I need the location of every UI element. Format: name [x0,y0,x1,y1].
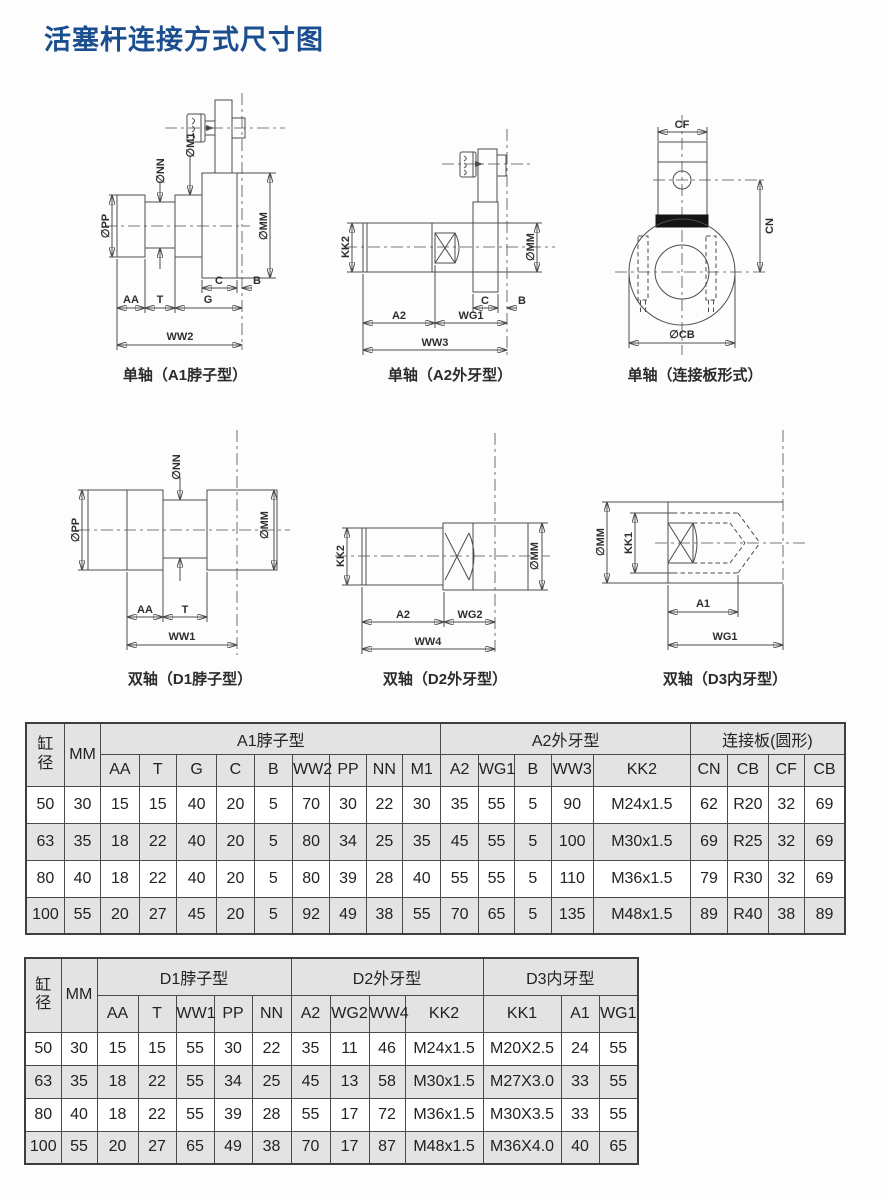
table-cell: 34 [214,1065,252,1098]
table-cell: 40 [403,860,441,897]
table-cell: 55 [176,1098,214,1131]
dim-label-t: T [182,604,189,616]
table-row: 63351822553425451358M30x1.5M27X3.03355 [25,1065,638,1098]
table-cell: 55 [478,786,514,823]
table-cell: 40 [176,786,216,823]
table-cell: 110 [551,860,593,897]
table-cell: 27 [138,1131,176,1164]
dim-label-g: G [204,294,213,306]
dim-label-c: C [481,295,489,307]
column-header: WG1 [599,995,638,1032]
table-cell: M30X3.5 [483,1098,561,1131]
dim-label-a2: A2 [392,310,406,322]
table-cell: 55 [478,860,514,897]
caption-d2: 双轴（D2外牙型） [320,668,570,689]
dim-label-wg1: WG1 [458,310,483,322]
table-cell: 5 [515,823,551,860]
column-header: NN [252,995,291,1032]
column-header: C [217,754,254,786]
table-cell: M30x1.5 [405,1065,483,1098]
table-row: 5030151540205703022303555590M24x1.562R20… [26,786,845,823]
column-header: WW3 [551,754,593,786]
table-cell: 40 [561,1131,599,1164]
table-cell: 24 [561,1032,599,1065]
double-shaft-dimension-table: 缸径MMD1脖子型D2外牙型D3内牙型AATWW1PPNNA2WG2WW4KK2… [24,957,639,1165]
column-header: WG1 [478,754,514,786]
dim-label-ww3: WW3 [422,337,449,349]
table-cell: 70 [291,1131,330,1164]
column-header: CB [804,754,845,786]
table-cell: 55 [478,823,514,860]
column-header: CB [728,754,768,786]
table-cell: 87 [369,1131,405,1164]
dim-label-cf: CF [675,119,690,131]
table-cell: 65 [599,1131,638,1164]
table-cell: 18 [101,860,139,897]
dim-label-ww2: WW2 [167,331,194,343]
table-cell: 92 [292,897,329,934]
table-cell: 5 [254,823,292,860]
column-header: AA [97,995,138,1032]
table-cell: 39 [214,1098,252,1131]
table-cell: R30 [728,860,768,897]
table-cell: 32 [768,786,804,823]
table-cell: 80 [26,860,64,897]
table-cell: 89 [804,897,845,934]
table-cell: 63 [25,1065,61,1098]
table-cell: M36x1.5 [405,1098,483,1131]
table-cell: 69 [804,823,845,860]
dim-label-b: B [253,275,261,287]
table-cell: 20 [217,823,254,860]
table-cell: 25 [252,1065,291,1098]
table-cell: 65 [478,897,514,934]
table-cell: 49 [330,897,366,934]
table-cell: 38 [768,897,804,934]
column-header: WW1 [176,995,214,1032]
table-cell: 20 [217,786,254,823]
table-cell: 30 [330,786,366,823]
column-header: NN [366,754,402,786]
table-cell: 45 [291,1065,330,1098]
table-cell: 33 [561,1065,599,1098]
single-shaft-dimension-table: 缸径MMA1脖子型A2外牙型连接板(圆形)AATGCBWW2PPNNM1A2WG… [25,722,846,935]
group-header: A2外牙型 [441,723,690,754]
column-header: A2 [441,754,478,786]
corner-header-cell: 缸径 [25,958,61,1032]
table-cell: 22 [138,1098,176,1131]
caption-a1: 单轴（A1脖子型） [60,364,310,385]
table-cell: 55 [599,1098,638,1131]
diagram-d2-external-thread: KK2 ∅MM A2 WG2 WW4 [315,425,585,665]
diagram-a1-neck-type: ∅PP ∅NN ∅M1 ∅MM C B AA T G WW2 [50,85,330,355]
diagram-connecting-plate: CF CN ∅CB [595,105,875,365]
column-header: B [254,754,292,786]
table-cell: 17 [330,1098,369,1131]
dim-label-ww1: WW1 [169,631,196,643]
bore-header-label: 缸径 [37,736,55,773]
table-cell: 50 [25,1032,61,1065]
table-cell: 22 [139,860,176,897]
dim-label-aa: AA [123,294,139,306]
table-cell: 22 [252,1032,291,1065]
bore-header-label: 缸径 [34,977,52,1014]
table-cell: 100 [551,823,593,860]
table-row: 80401822402058039284055555110M36x1.579R3… [26,860,845,897]
table-cell: 65 [176,1131,214,1164]
group-header: D2外牙型 [291,958,483,995]
table-cell: 18 [97,1098,138,1131]
table-cell: 89 [690,897,727,934]
group-header: 连接板(圆形) [690,723,845,754]
table-row: 100552027452059249385570655135M48x1.589R… [26,897,845,934]
table-cell: R25 [728,823,768,860]
table-cell: 55 [176,1065,214,1098]
group-header: D1脖子型 [97,958,291,995]
table-cell: 18 [101,823,139,860]
table-cell: 40 [61,1098,97,1131]
diagram-d1-neck-type: ∅NN ∅PP ∅MM AA T WW1 [50,425,330,665]
table-cell: 5 [254,897,292,934]
dim-label-kk2: KK2 [340,236,352,258]
table-cell: 40 [64,860,100,897]
column-header: KK2 [593,754,690,786]
column-header: KK2 [405,995,483,1032]
table-cell: 55 [599,1032,638,1065]
column-header: T [139,754,176,786]
table-cell: 25 [366,823,402,860]
dim-label-pp: ∅PP [100,214,112,238]
table-cell: 28 [366,860,402,897]
table-cell: 49 [214,1131,252,1164]
table-cell: 15 [138,1032,176,1065]
column-header: B [515,754,551,786]
table-cell: 63 [26,823,64,860]
diagram-a2-external-thread: KK2 ∅MM C B A2 WG1 WW3 [320,115,590,365]
table-cell: 80 [292,860,329,897]
table-cell: 20 [97,1131,138,1164]
table-cell: M36x1.5 [593,860,690,897]
table-cell: 30 [214,1032,252,1065]
column-header: T [138,995,176,1032]
column-header: CN [690,754,727,786]
table-cell: 22 [138,1065,176,1098]
table-cell: 35 [64,823,100,860]
table-cell: 33 [561,1098,599,1131]
table-cell: 40 [176,823,216,860]
table-cell: 79 [690,860,727,897]
column-header: KK1 [483,995,561,1032]
table-cell: 5 [515,897,551,934]
column-header: PP [330,754,366,786]
table-cell: 100 [25,1131,61,1164]
table-row: 100552027654938701787M48x1.5M36X4.04065 [25,1131,638,1164]
table-cell: 11 [330,1032,369,1065]
table-cell: 5 [254,860,292,897]
table-cell: M24x1.5 [405,1032,483,1065]
table-cell: 13 [330,1065,369,1098]
table-cell: 45 [441,823,478,860]
table-cell: 100 [26,897,64,934]
table-cell: 5 [515,786,551,823]
caption-plate: 单轴（连接板形式） [570,364,820,385]
caption-d1: 双轴（D1脖子型） [65,668,315,689]
table-cell: M27X3.0 [483,1065,561,1098]
dim-label-aa: AA [137,604,153,616]
table-cell: 28 [252,1098,291,1131]
dim-label-cb: ∅CB [669,329,695,341]
dim-label-a1: A1 [696,598,710,610]
table-cell: 18 [97,1065,138,1098]
table-cell: 30 [403,786,441,823]
table-cell: 80 [25,1098,61,1131]
table-cell: R40 [728,897,768,934]
dim-label-a2: A2 [396,609,410,621]
table-cell: 55 [291,1098,330,1131]
table-cell: 20 [217,897,254,934]
table-cell: 17 [330,1131,369,1164]
table-cell: 15 [101,786,139,823]
table-cell: 30 [64,786,100,823]
dim-label-t: T [157,294,164,306]
page-title: 活塞杆连接方式尺寸图 [44,18,324,57]
dim-label-wg1: WG1 [712,631,737,643]
table-cell: 27 [139,897,176,934]
table-cell: 30 [61,1032,97,1065]
table-row: 80401822553928551772M36x1.5M30X3.53355 [25,1098,638,1131]
table-cell: 69 [690,823,727,860]
table-cell: 90 [551,786,593,823]
table-cell: 15 [97,1032,138,1065]
table-cell: 38 [366,897,402,934]
column-header: WW2 [292,754,329,786]
column-header: A1 [561,995,599,1032]
table-cell: 55 [403,897,441,934]
dim-label-mm: ∅MM [595,528,607,556]
dim-label-wg2: WG2 [457,609,482,621]
table-cell: 45 [176,897,216,934]
table-cell: 69 [804,786,845,823]
group-header: D3内牙型 [483,958,638,995]
table-cell: 55 [176,1032,214,1065]
table-cell: 5 [254,786,292,823]
table-cell: 38 [252,1131,291,1164]
dim-label-m1: ∅M1 [185,133,197,158]
column-header: WW4 [369,995,405,1032]
table-cell: 20 [217,860,254,897]
dim-label-kk2: KK2 [335,545,347,567]
table-cell: M20X2.5 [483,1032,561,1065]
table-cell: 135 [551,897,593,934]
table-cell: 20 [101,897,139,934]
dim-label-mm: ∅MM [258,212,270,240]
table-cell: 72 [369,1098,405,1131]
table-cell: 35 [291,1032,330,1065]
dim-label-mm: ∅MM [259,511,271,539]
dim-label-pp: ∅PP [70,518,82,542]
table-cell: 15 [139,786,176,823]
dim-label-mm: ∅MM [529,542,541,570]
table-cell: 40 [176,860,216,897]
table-cell: 69 [804,860,845,897]
table-cell: 58 [369,1065,405,1098]
table-cell: R20 [728,786,768,823]
table-cell: 62 [690,786,727,823]
table-cell: 5 [515,860,551,897]
column-header: PP [214,995,252,1032]
table-row: 63351822402058034253545555100M30x1.569R2… [26,823,845,860]
table-cell: 46 [369,1032,405,1065]
table-cell: 55 [64,897,100,934]
dim-label-ww4: WW4 [415,636,443,648]
table-cell: 55 [61,1131,97,1164]
table-cell: M24x1.5 [593,786,690,823]
dim-label-mm: ∅MM [525,233,537,261]
table-cell: M48x1.5 [593,897,690,934]
catalog-page: 活塞杆连接方式尺寸图 ∅PP ∅NN ∅M1 ∅MM C B [0,0,887,1200]
table-row: 50301515553022351146M24x1.5M20X2.52455 [25,1032,638,1065]
table-cell: 22 [139,823,176,860]
table-cell: 32 [768,823,804,860]
table-cell: 39 [330,860,366,897]
corner-header-cell: 缸径 [26,723,64,786]
table-cell: 80 [292,823,329,860]
table-cell: M48x1.5 [405,1131,483,1164]
table-cell: 32 [768,860,804,897]
dim-label-cn: CN [764,218,776,234]
dim-label-b: B [518,295,526,307]
table-cell: 35 [441,786,478,823]
group-header: A1脖子型 [101,723,441,754]
table-cell: 55 [441,860,478,897]
table-cell: M36X4.0 [483,1131,561,1164]
mm-header-cell: MM [64,723,100,786]
table-cell: 55 [599,1065,638,1098]
caption-a2: 单轴（A2外牙型） [325,364,575,385]
column-header: M1 [403,754,441,786]
table-cell: 35 [61,1065,97,1098]
caption-d3: 双轴（D3内牙型） [600,668,850,689]
column-header: A2 [291,995,330,1032]
column-header: CF [768,754,804,786]
table-cell: 70 [292,786,329,823]
column-header: WG2 [330,995,369,1032]
table-cell: 34 [330,823,366,860]
dim-label-kk1: KK1 [623,532,635,554]
diagram-d3-internal-thread: ∅MM KK1 A1 WG1 [580,425,870,665]
dim-label-c: C [215,275,223,287]
column-header: G [176,754,216,786]
dim-label-nn: ∅NN [171,454,183,480]
column-header: AA [101,754,139,786]
dim-label-nn: ∅NN [155,158,167,184]
table-cell: 35 [403,823,441,860]
table-cell: 50 [26,786,64,823]
mm-header-cell: MM [61,958,97,1032]
table-cell: 22 [366,786,402,823]
table-cell: 70 [441,897,478,934]
table-cell: M30x1.5 [593,823,690,860]
